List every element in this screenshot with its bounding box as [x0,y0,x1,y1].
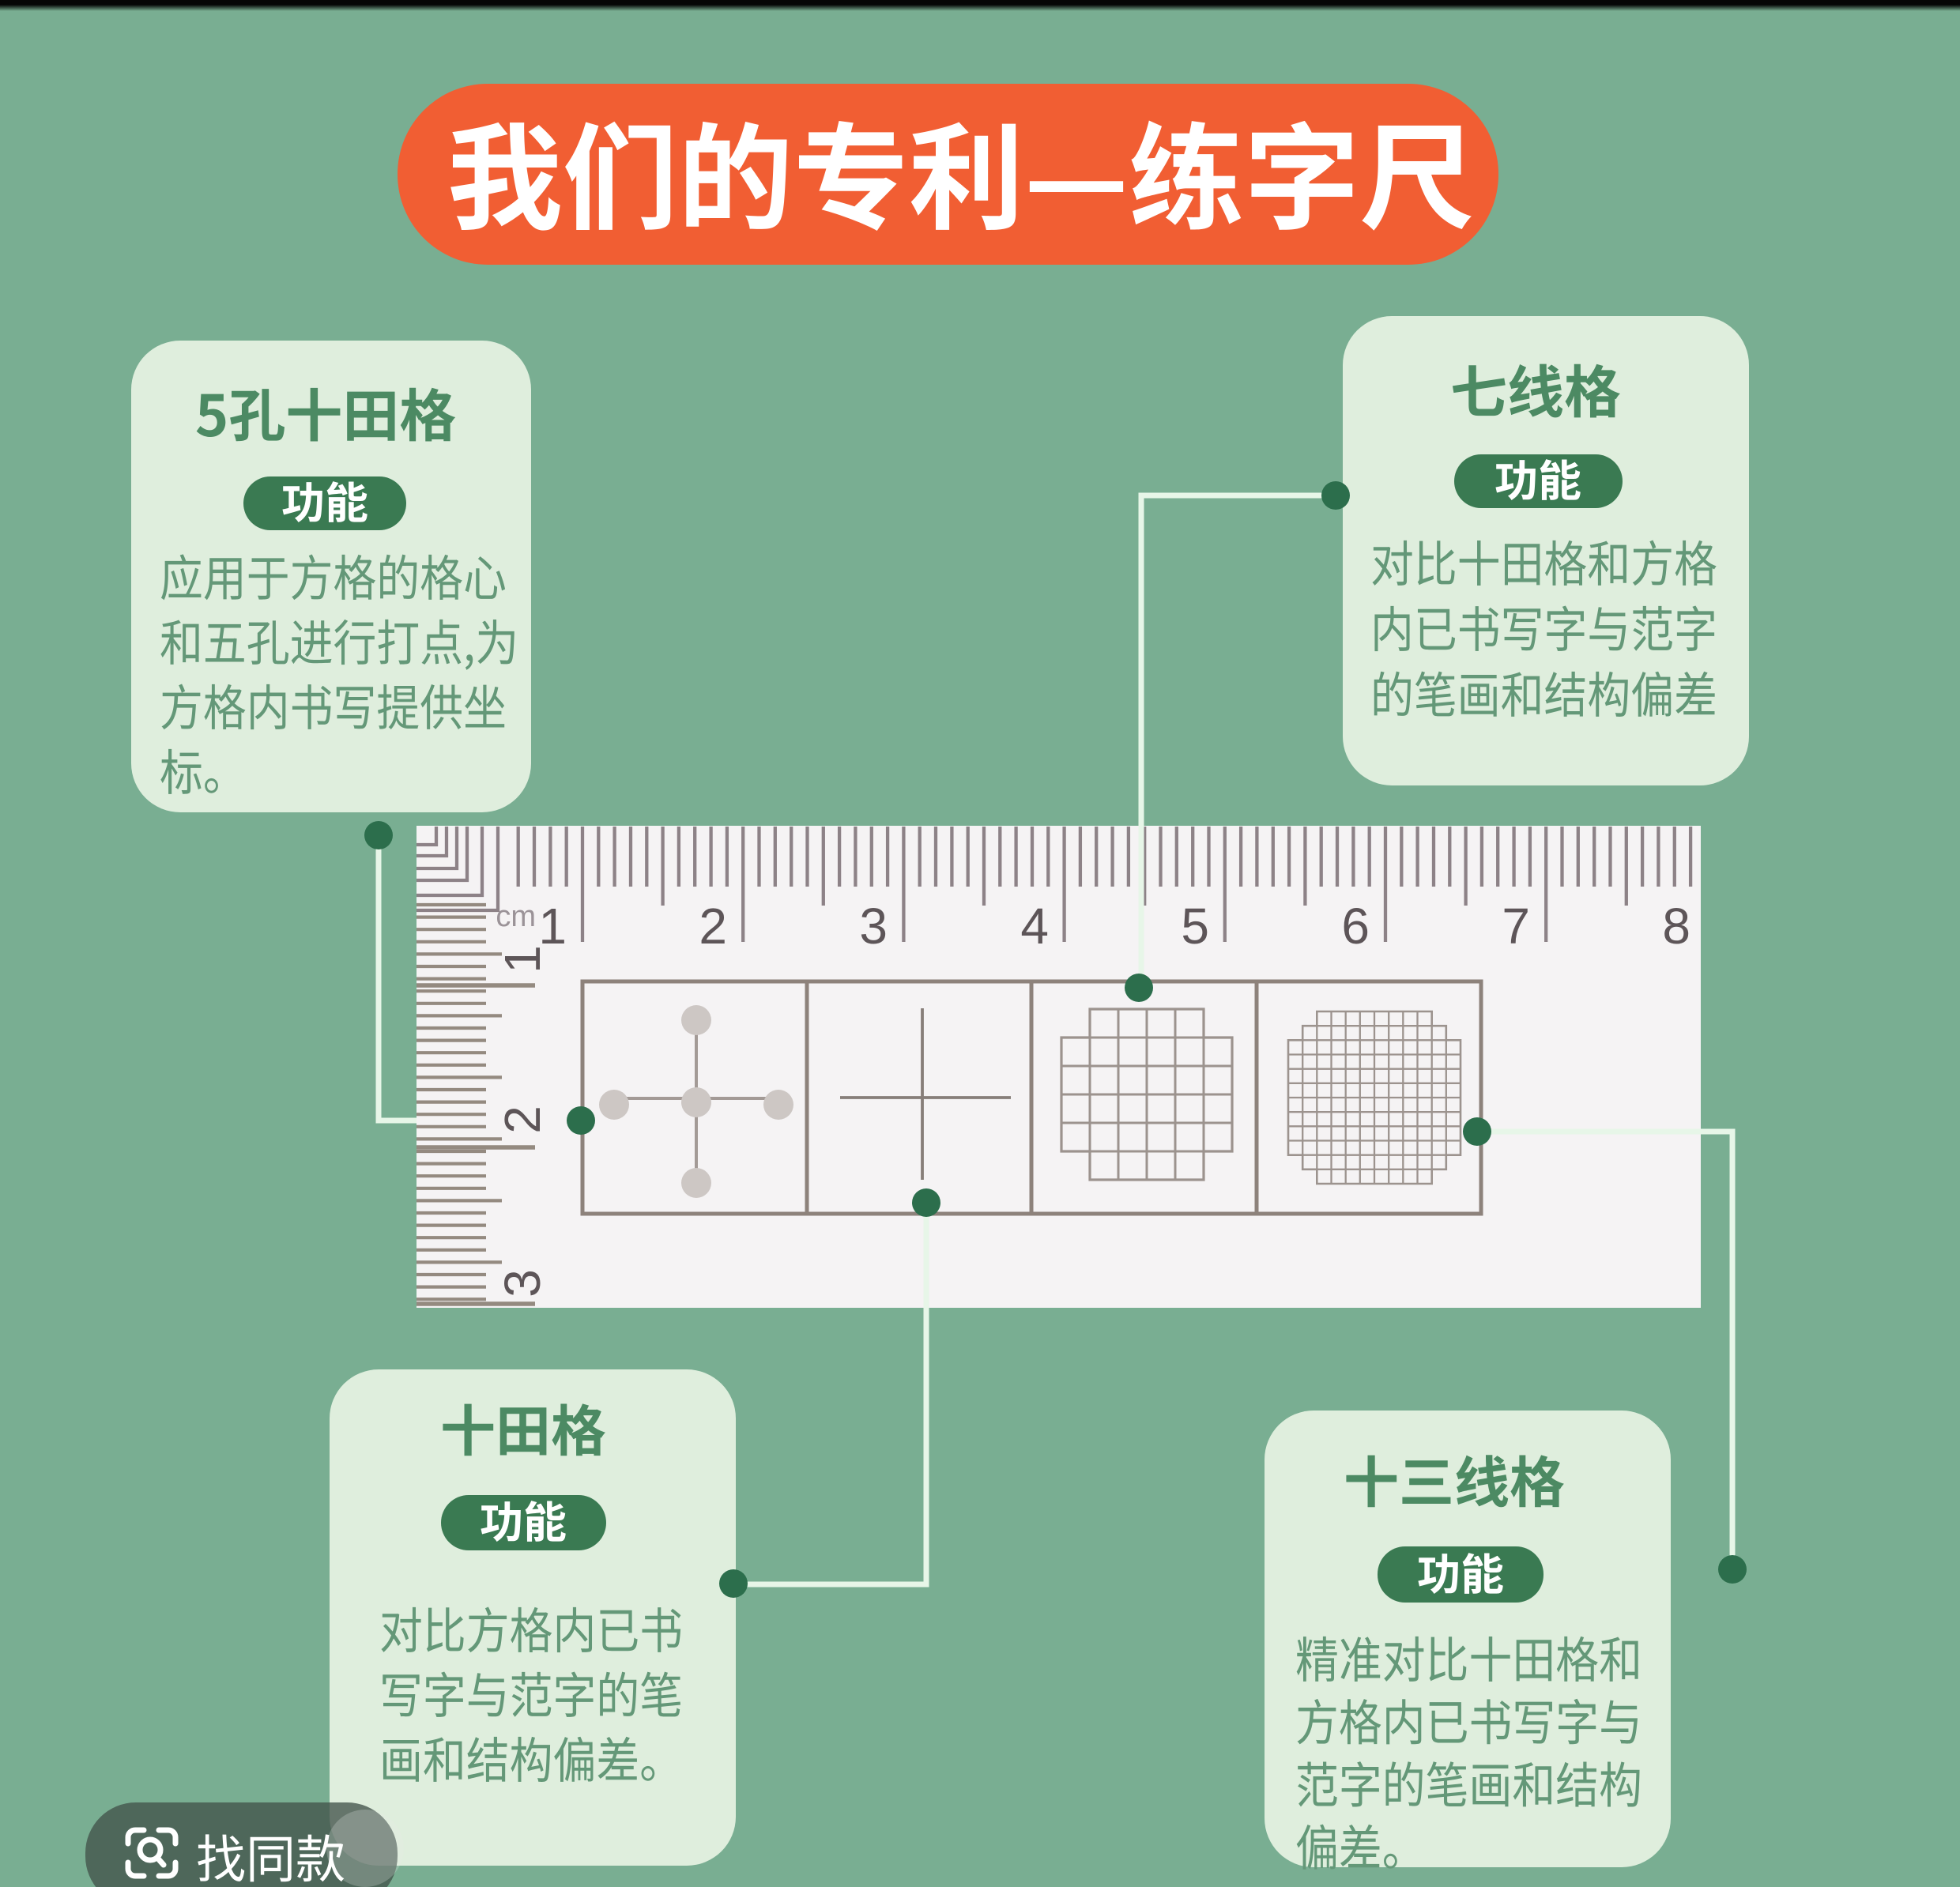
svg-text:2: 2 [699,898,727,955]
svg-text:1: 1 [494,945,551,974]
svg-text:7: 7 [1502,898,1530,955]
svg-text:3: 3 [494,1269,551,1298]
svg-text:4: 4 [1020,898,1049,955]
svg-text:6: 6 [1341,898,1370,955]
svg-text:3: 3 [859,898,888,955]
svg-text:5: 5 [1181,898,1209,955]
svg-text:8: 8 [1662,898,1690,955]
svg-text:cm: cm [496,900,536,933]
svg-text:2: 2 [494,1105,551,1134]
